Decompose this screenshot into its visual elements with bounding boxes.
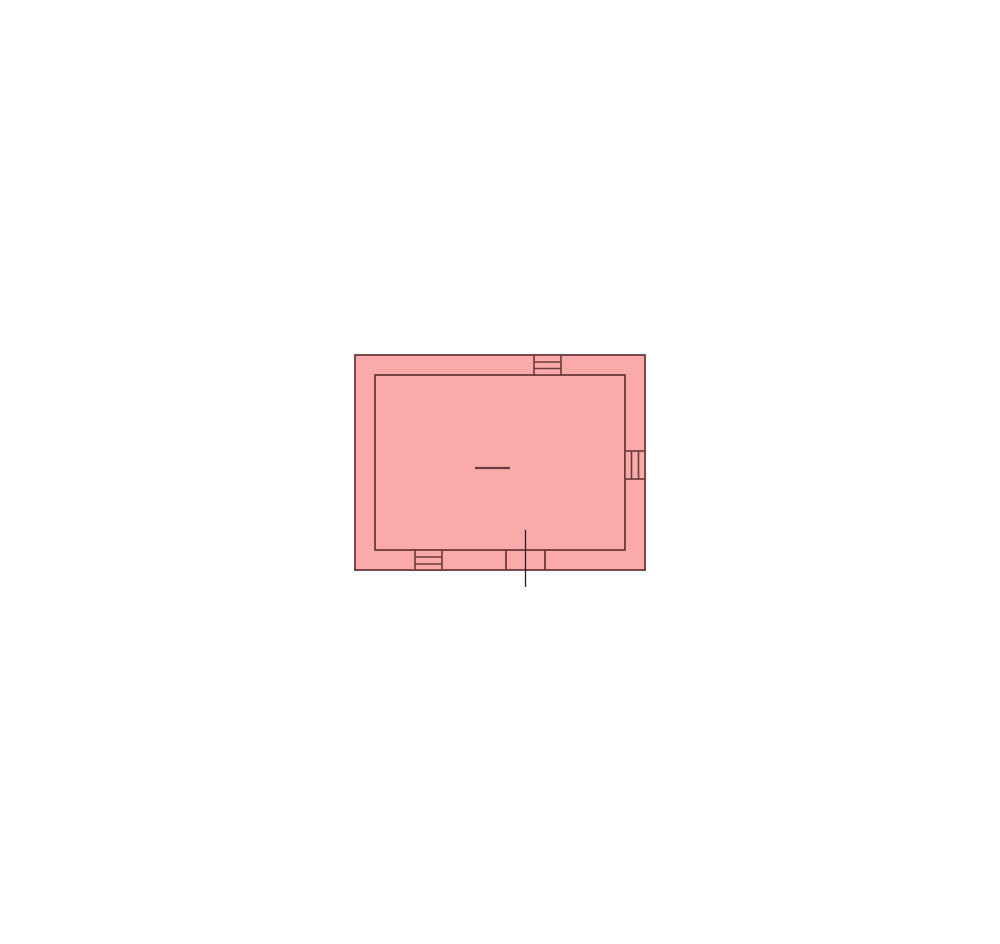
drawing-canvas [0, 0, 1000, 944]
floor-plan-svg [0, 0, 1000, 944]
window-top [534, 355, 561, 375]
window-bottom [415, 550, 442, 570]
outer-wall [355, 355, 645, 570]
window-right [625, 451, 645, 479]
